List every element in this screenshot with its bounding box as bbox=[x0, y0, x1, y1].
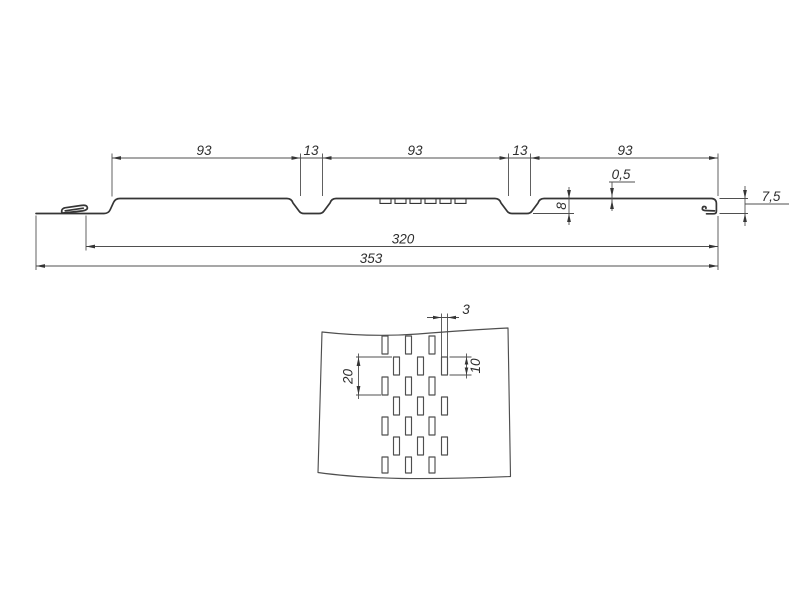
dim-label-13-2: 13 bbox=[512, 143, 528, 158]
detail-slot bbox=[382, 336, 388, 354]
detail-slot bbox=[442, 397, 448, 415]
arrow-down-icon bbox=[357, 386, 361, 395]
dim-label-slot-length: 10 bbox=[468, 358, 483, 374]
edge-hook bbox=[702, 207, 714, 211]
arrow-left-icon bbox=[531, 156, 540, 160]
profile-outline bbox=[36, 199, 716, 214]
detail-slot bbox=[442, 357, 448, 375]
arrow-left-icon bbox=[36, 264, 45, 268]
arrow-down-icon bbox=[610, 188, 614, 197]
detail-slot bbox=[382, 417, 388, 435]
dim-label-353: 353 bbox=[360, 251, 383, 266]
edge-slot bbox=[380, 199, 391, 203]
edge-perforation-group bbox=[380, 199, 466, 203]
detail-slot bbox=[418, 437, 424, 455]
arrow-left-icon bbox=[112, 156, 121, 160]
technical-drawing: 93 13 93 13 93 320 353 0,5 8 7,5 bbox=[0, 0, 800, 600]
drawing-canvas: 93 13 93 13 93 320 353 0,5 8 7,5 bbox=[0, 0, 800, 600]
detail-slot bbox=[394, 397, 400, 415]
arrow-up-icon bbox=[743, 214, 747, 223]
arrow-right-icon bbox=[292, 156, 301, 160]
detail-slot bbox=[394, 437, 400, 455]
arrow-down-icon bbox=[743, 190, 747, 199]
edge-slot bbox=[425, 199, 436, 203]
dim-label-groove-depth: 8 bbox=[554, 202, 569, 210]
arrow-left-icon bbox=[323, 156, 332, 160]
arrow-right-icon bbox=[500, 156, 509, 160]
perforation-detail-view: 3 10 20 bbox=[318, 302, 511, 479]
arrow-right-icon bbox=[433, 316, 442, 320]
detail-slot bbox=[418, 397, 424, 415]
arrow-up-icon bbox=[610, 200, 614, 209]
detail-dim-arrows bbox=[357, 316, 469, 395]
arrow-left-icon bbox=[448, 316, 457, 320]
arrow-right-icon bbox=[709, 264, 718, 268]
profile-outline-group bbox=[36, 199, 716, 214]
detail-slot bbox=[429, 336, 435, 354]
detail-slot bbox=[382, 457, 388, 473]
arrow-left-icon bbox=[86, 245, 95, 249]
dim-label-320: 320 bbox=[392, 232, 415, 247]
detail-slot bbox=[418, 357, 424, 375]
edge-slot bbox=[395, 199, 406, 203]
detail-slot bbox=[429, 417, 435, 435]
detail-slot bbox=[406, 457, 412, 473]
detail-geometry bbox=[318, 328, 511, 479]
detail-panel-outline bbox=[318, 328, 511, 479]
profile-dim-labels: 93 13 93 13 93 320 353 0,5 8 7,5 bbox=[196, 143, 780, 266]
dim-label-93-2: 93 bbox=[407, 143, 423, 158]
arrow-right-icon bbox=[709, 245, 718, 249]
dim-label-thickness: 0,5 bbox=[612, 167, 631, 182]
dim-label-13-1: 13 bbox=[303, 143, 319, 158]
edge-slot bbox=[455, 199, 466, 203]
dim-label-row-span: 20 bbox=[341, 369, 356, 386]
profile-dim-arrows bbox=[36, 156, 747, 268]
detail-slot bbox=[406, 417, 412, 435]
arrow-down-icon bbox=[567, 190, 571, 199]
dim-label-edge-height: 7,5 bbox=[762, 189, 781, 204]
detail-slot bbox=[442, 437, 448, 455]
detail-slot bbox=[429, 457, 435, 473]
detail-slot bbox=[394, 357, 400, 375]
dim-label-slot-width: 3 bbox=[462, 302, 470, 317]
dim-label-93-3: 93 bbox=[617, 143, 633, 158]
detail-slot bbox=[382, 377, 388, 395]
detail-slot bbox=[406, 377, 412, 395]
arrow-right-icon bbox=[709, 156, 718, 160]
profile-section-view: 93 13 93 13 93 320 353 0,5 8 7,5 bbox=[36, 143, 789, 270]
detail-slot bbox=[406, 336, 412, 354]
arrow-up-icon bbox=[567, 214, 571, 223]
detail-dim-lines bbox=[356, 314, 472, 400]
arrow-up-icon bbox=[357, 357, 361, 366]
dim-label-93-1: 93 bbox=[196, 143, 212, 158]
edge-slot bbox=[410, 199, 421, 203]
profile-dim-lines bbox=[36, 154, 789, 271]
detail-slot bbox=[429, 377, 435, 395]
edge-slot bbox=[440, 199, 451, 203]
